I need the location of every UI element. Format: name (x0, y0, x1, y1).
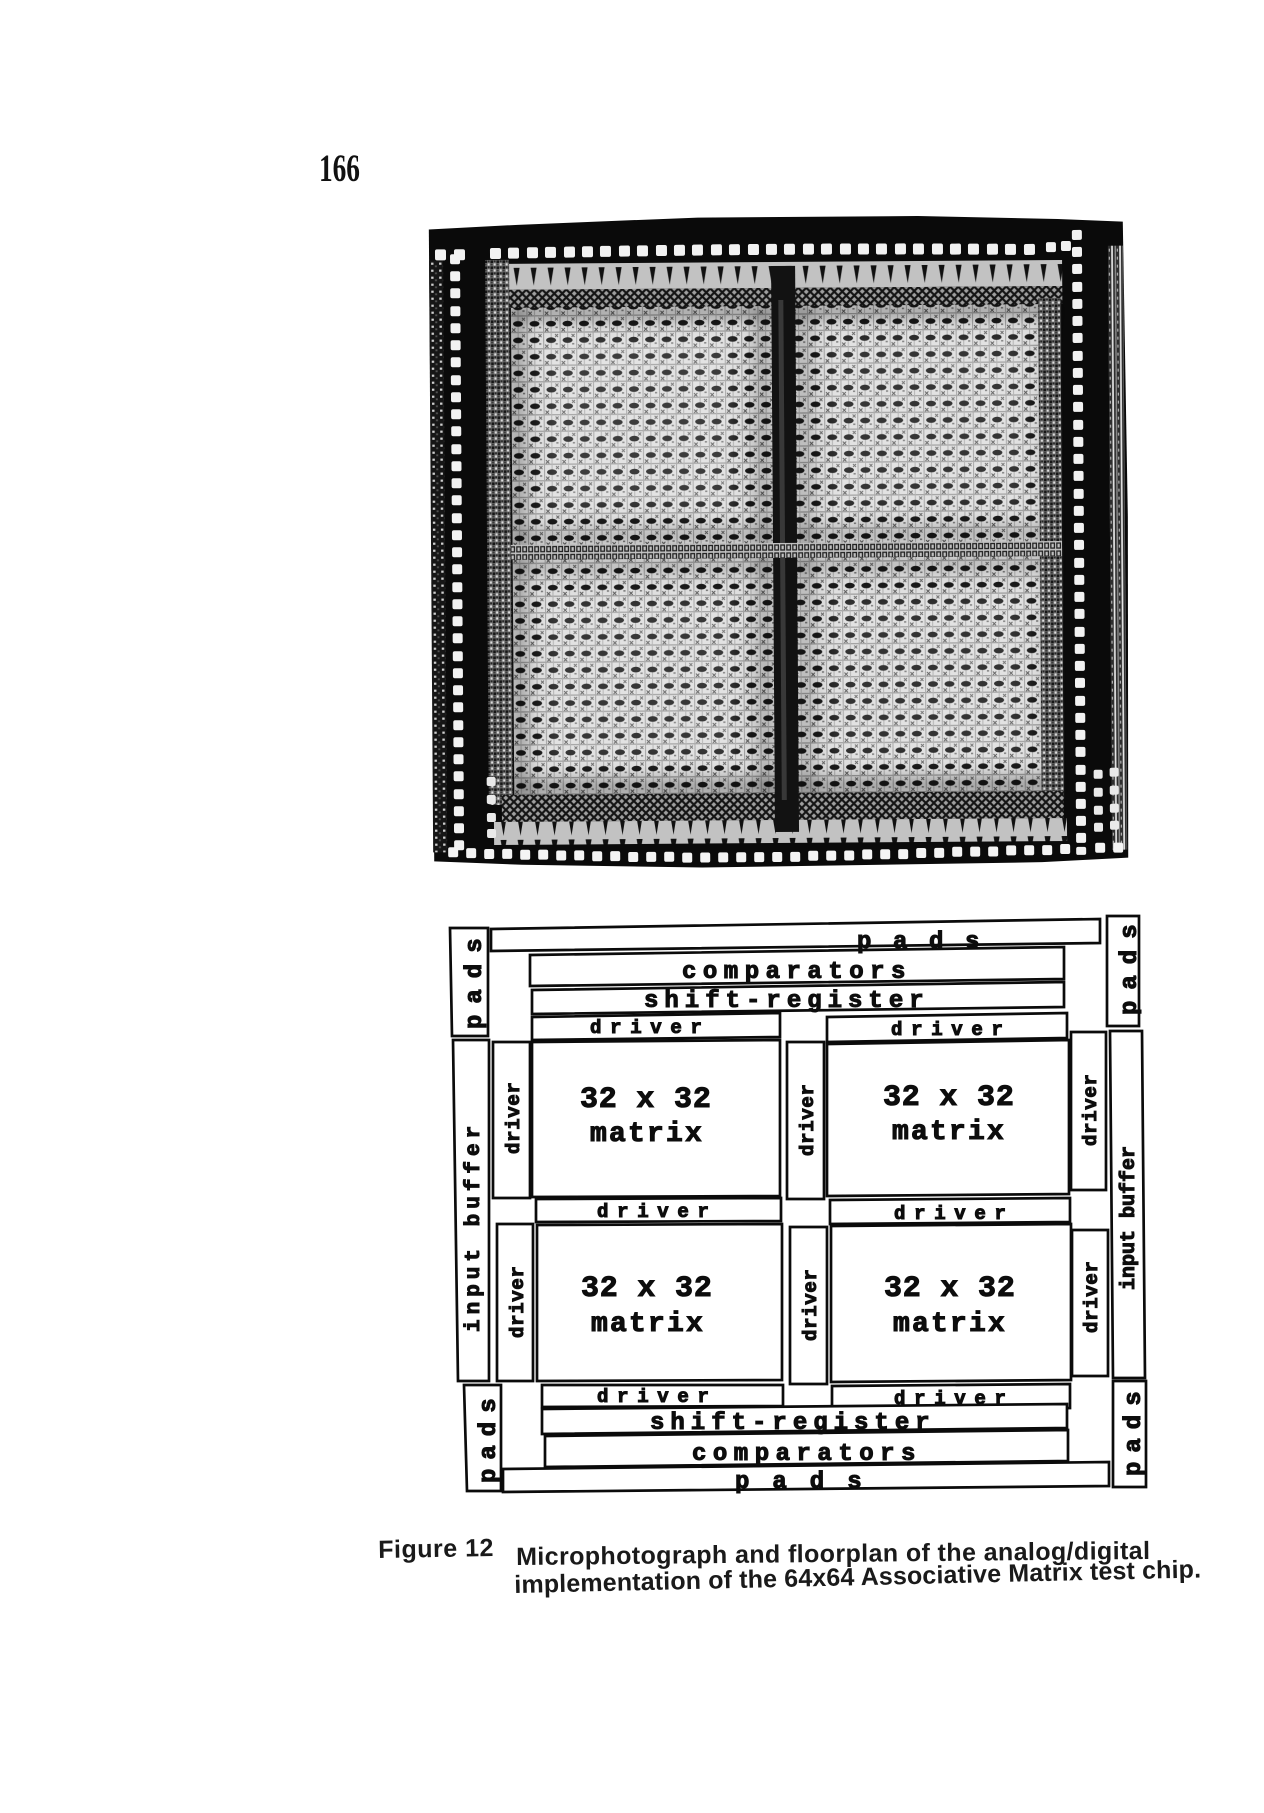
svg-text:shift-register: shift-register (644, 988, 930, 1015)
svg-text:driver: driver (507, 1265, 529, 1338)
svg-text:32 x 32: 32 x 32 (883, 1081, 1015, 1115)
svg-text:matrix: matrix (893, 1309, 1007, 1340)
svg-text:shift-register: shift-register (650, 1410, 936, 1437)
svg-text:pads: pads (1121, 1382, 1148, 1476)
svg-text:input buffer: input buffer (1118, 1146, 1141, 1290)
svg-text:matrix: matrix (591, 1309, 705, 1340)
svg-text:pads: pads (857, 929, 1001, 956)
svg-text:driver: driver (597, 1201, 718, 1223)
svg-text:pads: pads (462, 927, 489, 1029)
svg-text:driver: driver (1080, 1073, 1102, 1146)
svg-text:driver: driver (1081, 1260, 1103, 1333)
svg-text:32 x 32: 32 x 32 (884, 1272, 1016, 1306)
svg-text:driver: driver (894, 1388, 1015, 1410)
svg-text:32 x 32: 32 x 32 (581, 1272, 713, 1306)
svg-text:driver: driver (590, 1017, 711, 1039)
svg-text:driver: driver (797, 1083, 819, 1156)
svg-text:pads: pads (476, 1389, 503, 1483)
svg-text:driver: driver (894, 1203, 1015, 1225)
svg-text:driver: driver (800, 1268, 822, 1341)
svg-text:matrix: matrix (590, 1119, 704, 1150)
svg-text:driver: driver (503, 1081, 525, 1154)
svg-text:32 x 32: 32 x 32 (580, 1083, 712, 1117)
svg-text:pads: pads (735, 1469, 885, 1496)
svg-text:matrix: matrix (892, 1117, 1006, 1148)
svg-text:driver: driver (891, 1019, 1012, 1041)
svg-text:comparators: comparators (682, 959, 912, 986)
svg-text:pads: pads (1117, 913, 1144, 1015)
svg-text:input buffer: input buffer (463, 1121, 486, 1332)
svg-text:comparators: comparators (692, 1441, 922, 1468)
svg-text:driver: driver (597, 1386, 718, 1408)
